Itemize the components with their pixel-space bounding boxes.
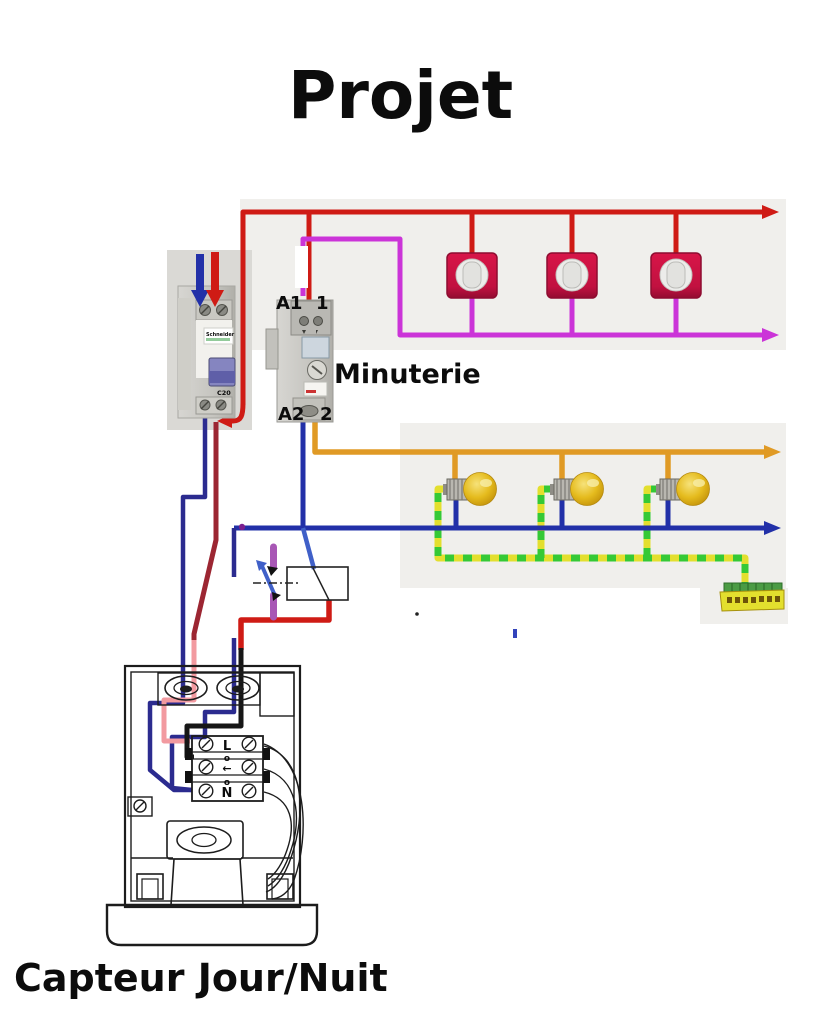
timer-name-label: Minuterie [334, 359, 481, 390]
push-buttons [447, 253, 701, 298]
page-title: Projet [288, 57, 513, 134]
timer-terminal-2: 2 [320, 404, 333, 425]
phase-in-arrow [211, 252, 219, 292]
neutral-in-arrow [196, 254, 204, 292]
breaker-rating-label: C20 [217, 389, 231, 397]
timer-terminal-a2: A2 [278, 404, 304, 425]
wiring-diagram: Projet [0, 0, 814, 1024]
earth-terminal-block [720, 583, 784, 611]
push-button-1 [447, 253, 497, 298]
label-arrow: ← [222, 762, 231, 775]
timer-terminal-a1: A1 [276, 293, 302, 314]
label-live: L [223, 739, 231, 754]
sensor-name-label: Capteur Jour/Nuit [14, 956, 388, 1000]
breaker-brand-label: Schneider [206, 332, 235, 338]
push-button-2 [547, 253, 597, 298]
sensor-terminal-labels: L o ← o N [222, 739, 233, 801]
bus-junction-dot [239, 524, 245, 530]
push-button-3 [651, 253, 701, 298]
white-patch-over-magenta [295, 246, 308, 288]
wiring-diagram-page: Projet [0, 0, 814, 1024]
label-neutral: N [222, 786, 233, 801]
circuit-breaker: Schneider C20 [178, 286, 235, 418]
timer-terminal-1: 1 [316, 293, 329, 314]
